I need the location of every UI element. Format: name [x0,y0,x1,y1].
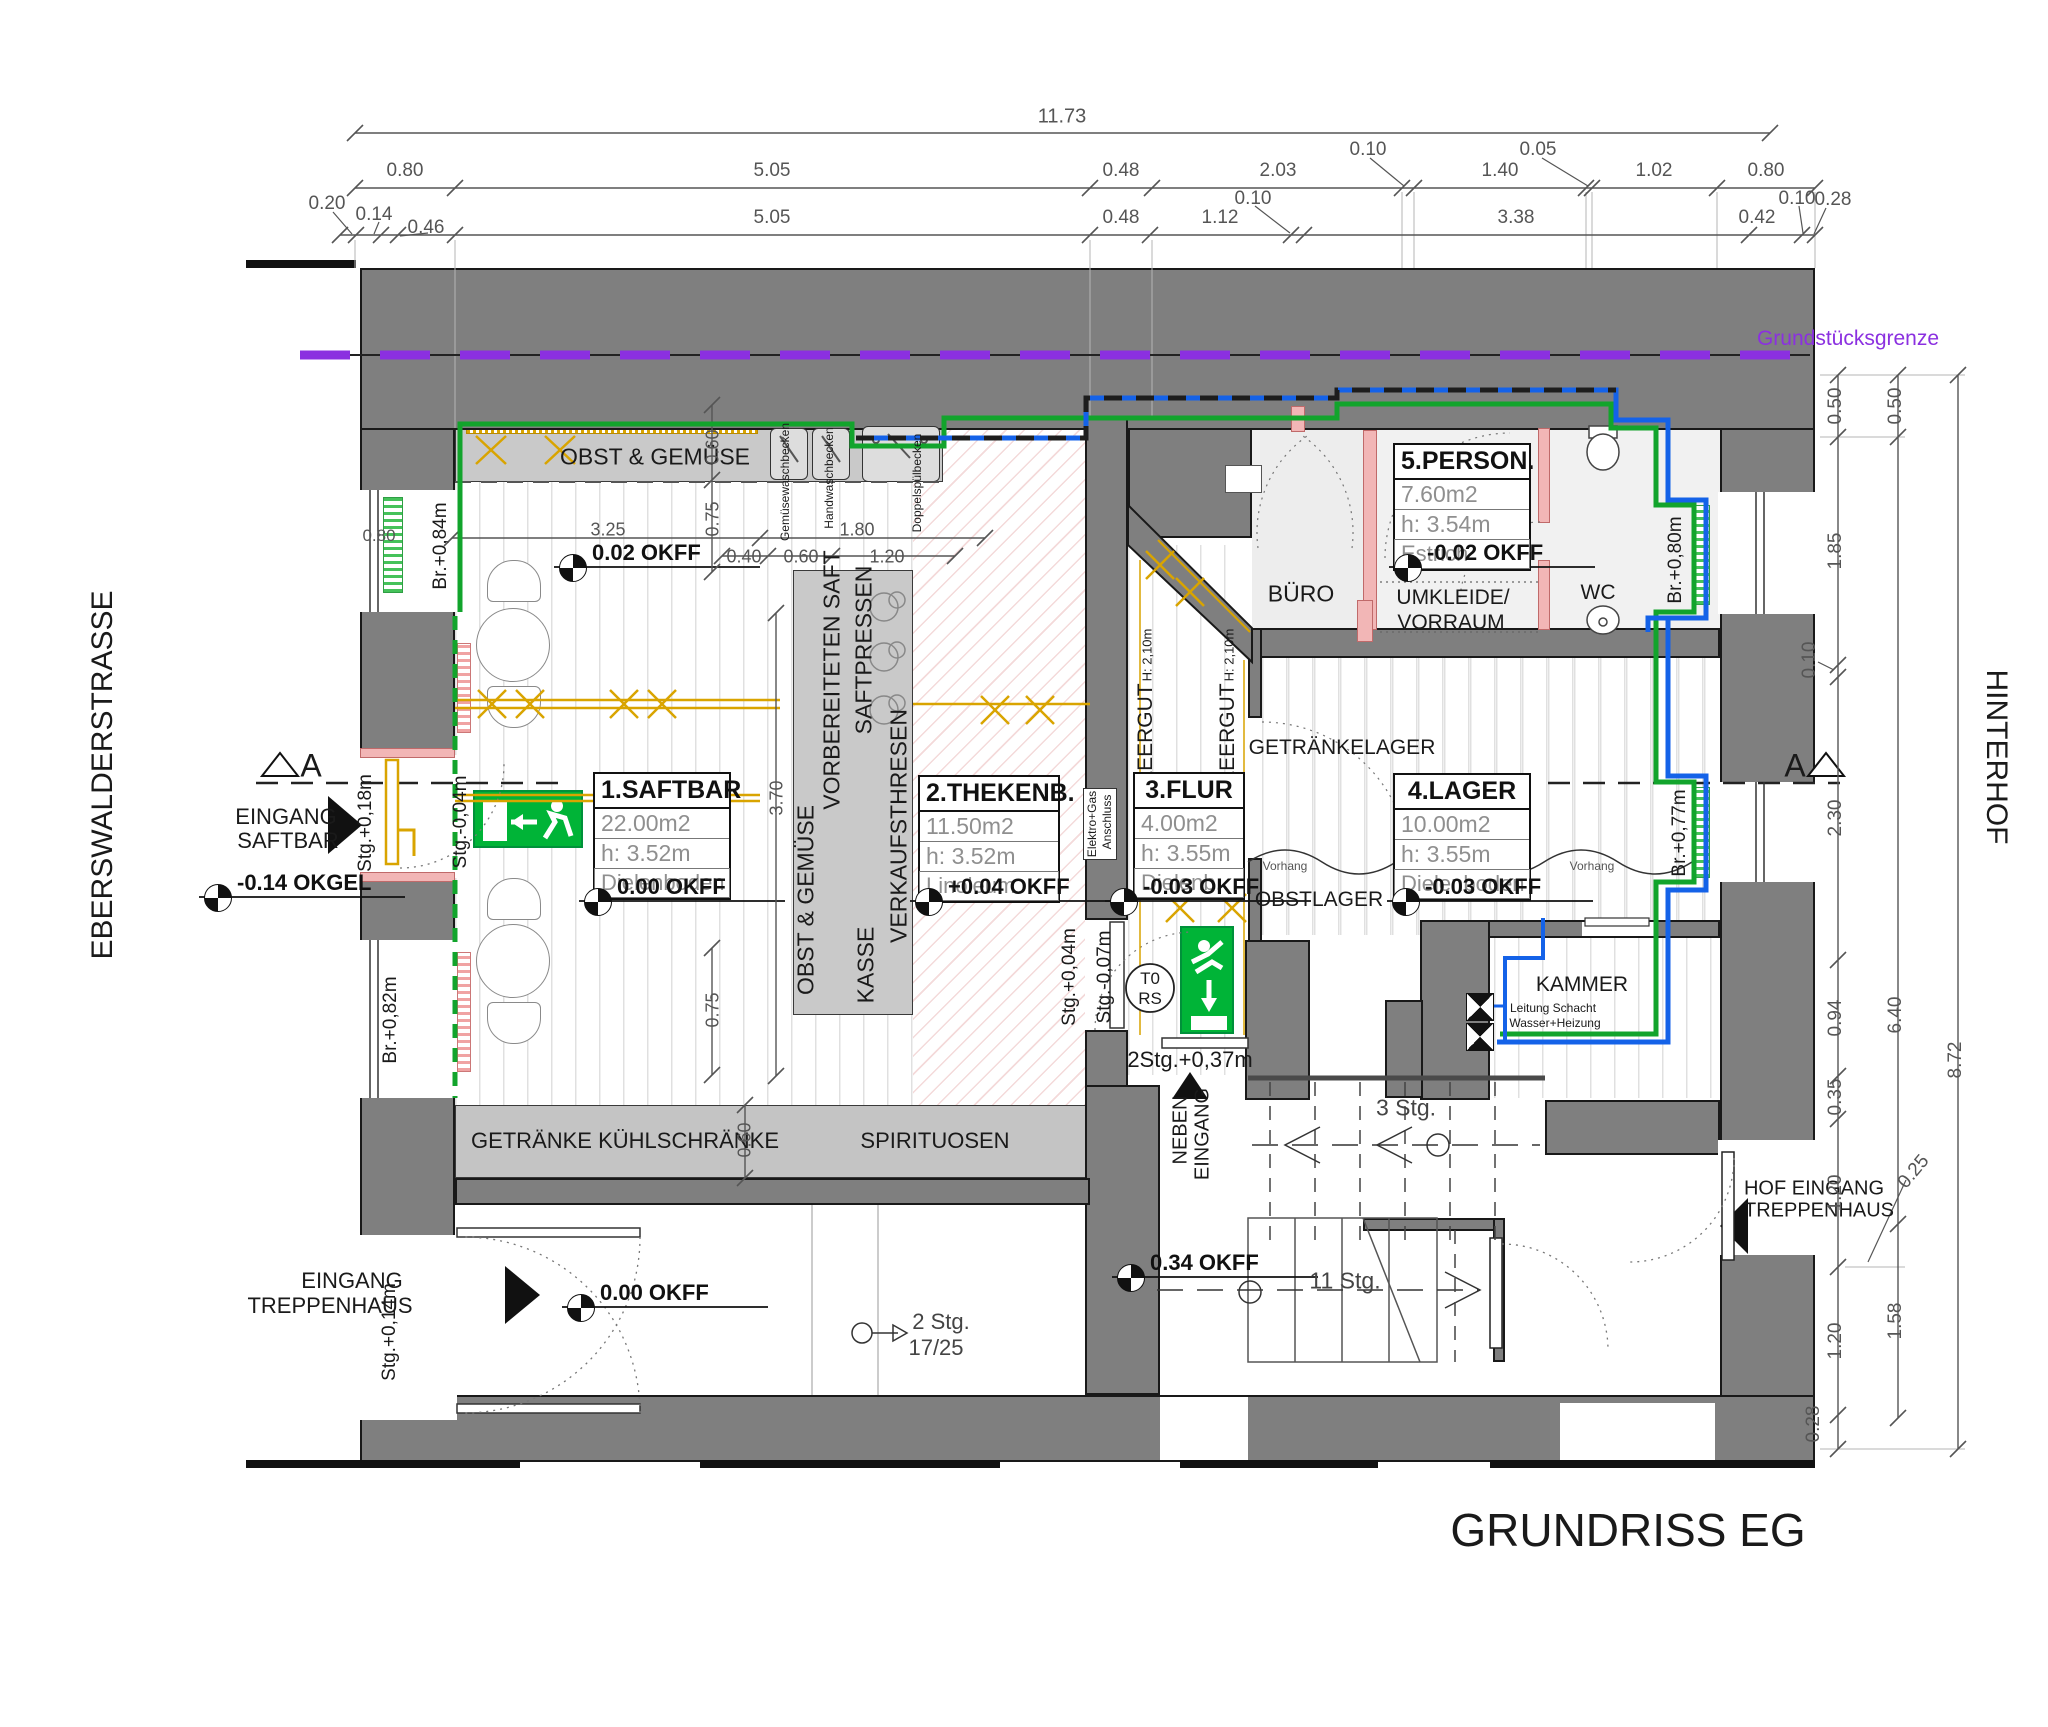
room-area: 22.00m2 [595,809,729,839]
annotation-label: 17/25 [908,1335,963,1361]
street-label: EBERSWALDERSTRASSE [86,591,120,960]
annotation-label: EINGANG [1192,1088,1215,1180]
annotation-label: 0.14 [356,204,393,226]
courtyard-label: HINTERHOF [1979,670,2013,845]
annotation-label: HOF EINGANG [1744,1178,1884,1201]
annotation-label: Stg.+0,04m [1059,928,1081,1026]
room-name: 2.THEKENB. [920,777,1058,812]
annotation-label: Stg.-0,07m [1094,931,1116,1024]
level-mark-text: -0.03 OKFF [1425,874,1541,900]
annotation-label: NEBEN [1170,1096,1193,1165]
annotation-label: Stg.+0,18m [355,774,377,872]
annotation-label: 0.25 [1894,1151,1935,1193]
room-area: 4.00m2 [1135,809,1243,839]
annotation-label: 0.40 [726,547,761,568]
annotation-label: VORBEREITETEN SAFT [819,550,846,809]
room-name: 4.LAGER [1395,775,1529,810]
annotation-label: OBST & GEMÜSE [793,805,820,995]
annotation-label: 0.80 [1748,160,1785,182]
annotation-label: 1.20 [1825,1323,1847,1360]
annotation-label: EINGANG [235,804,336,830]
room-area: 11.50m2 [920,812,1058,842]
annotation-label: 1.20 [1825,1175,1847,1212]
level-mark-symbol [584,888,612,916]
level-mark-text: -0.03 OKFF [1143,874,1259,900]
annotation-label: VORRAUM [1397,611,1504,635]
annotation-label: A [1784,748,1805,785]
annotation-label: GETRÄNKE KÜHLSCHRÄNKE [471,1128,779,1154]
room-name: 3.FLUR [1135,774,1243,809]
annotation-label: 1.80 [839,520,874,541]
annotation-label: 0.80 [387,160,424,182]
annotation-label: SAFTBAR [237,828,338,854]
annotation-label: UMKLEIDE/ [1396,586,1509,610]
annotation-label: Stg.-0,04m [450,776,472,869]
annotation-label: 0.10 [1779,188,1816,210]
annotation-label: Doppelspülbecken [910,434,924,533]
annotation-label: 1.58 [1885,1303,1907,1340]
annotation-label: 1.85 [1825,533,1847,570]
annotation-label: SPIRITUOSEN [860,1128,1009,1154]
annotation-label: Leitung Schacht [1510,1001,1596,1015]
annotation-label: 0.28 [1803,1406,1825,1443]
annotation-label: Vorhang [1263,859,1308,873]
annotation-label: 1.40 [1482,160,1519,182]
annotation-label: LEERGUT [1134,683,1158,782]
room-area: 10.00m2 [1395,810,1529,840]
annotation-label: 3.25 [590,520,625,541]
room-height: h: 3.55m [1395,840,1529,870]
annotation-label: 0.50 [1825,388,1847,425]
plan-title: GRUNDRISS EG [1450,1503,1805,1557]
annotation-label: 0.35 [1825,1079,1847,1116]
annotation-label: 0.48 [1103,207,1140,229]
room-name: 1.SAFTBAR [595,774,729,809]
room-height: h: 3.52m [920,842,1058,872]
annotation-label: RS [1138,989,1162,1009]
annotation-label: 2Stg.+0,37m [1127,1047,1252,1073]
annotation-label: 11 Stg. [1309,1268,1380,1295]
annotation-label: Br.+0,80m [1665,516,1687,603]
annotation-label: KASSE [853,927,880,1004]
annotation-label: Vorhang [1570,859,1615,873]
room-height: h: 3.55m [1135,839,1243,869]
room-height: h: 3.54m [1395,510,1529,540]
annotation-label: 6.40 [1885,997,1907,1034]
level-mark-symbol [1110,888,1138,916]
annotation-label: 0.60 [735,1122,756,1157]
annotation-label: 3.70 [767,780,788,815]
annotation-label: OBSTLAGER [1255,888,1383,912]
annotation-label: Handwaschbecken [822,427,836,528]
annotation-label: 0.05 [1520,139,1557,161]
annotation-label: Br.+0,77m [1669,789,1691,876]
annotation-label: Anschluss [1100,795,1114,850]
annotation-label: Wasser+Heizung [1509,1016,1600,1030]
annotation-label: WC [1581,581,1616,605]
annotation-label: 0.10 [1799,642,1821,679]
annotation-label: LEERGUT [1216,683,1240,782]
level-mark-text: 0.00 OKFF [617,874,726,900]
annotation-label: VERKAUFSTHRESEN [886,709,913,943]
annotation-label: 0.94 [1825,1000,1847,1037]
annotation-label: Br.+0,84m [430,502,452,589]
level-mark-text: 0.02 OKFF [592,540,701,566]
annotation-label: 1.02 [1636,160,1673,182]
annotation-label: 0.60 [703,429,724,464]
annotation-label: 2.30 [1825,800,1847,837]
annotation-label: Gemüsewaschbecken [778,423,792,541]
annotation-label: SAFTPRESSEN [851,566,878,735]
annotation-label: 0.80 [362,526,395,546]
annotation-label: 5.05 [754,160,791,182]
annotation-label: 0.46 [408,217,445,239]
room-area: 7.60m2 [1395,480,1529,510]
annotation-label: TREPPENHAUS [1744,1200,1894,1223]
room-height: h: 3.52m [595,839,729,869]
level-mark-text: +0.04 OKFF [948,874,1070,900]
annotation-label: 5.05 [754,207,791,229]
room-name: 5.PERSON. [1395,445,1529,480]
level-mark-symbol [915,888,943,916]
level-mark-symbol [1394,554,1422,582]
annotation-label: 0.75 [703,501,724,536]
annotation-label: 11.73 [1038,106,1087,129]
level-mark-symbol [1117,1264,1145,1292]
annotation-label: Elektro+Gas [1085,791,1099,857]
annotation-label: 0.10 [1235,188,1272,210]
annotation-label: H: 2,10m [1222,629,1237,682]
annotation-label: Br.+0,82m [380,976,402,1063]
annotation-label: 1.12 [1202,207,1239,229]
annotation-label: H: 2,10m [1140,629,1155,682]
annotation-label: 0.20 [309,193,346,215]
annotation-label: 2 Stg. [912,1309,969,1335]
annotation-label: 0.60 [783,547,818,568]
floorplan-grundriss-eg: GRUNDRISS EGEBERSWALDERSTRASSEHINTERHOFG… [0,0,2048,1727]
level-mark-text: -0.14 OKGEL [237,870,371,896]
annotation-label: GETRÄNKELAGER [1249,736,1436,760]
level-mark-symbol [1392,888,1420,916]
boundary-label: Grundstücksgrenze [1757,327,1939,351]
level-mark-symbol [567,1294,595,1322]
annotation-label: T0 [1140,969,1160,989]
annotation-label: BÜRO [1268,581,1334,608]
annotation-label: Stg.+0,14m [379,1283,401,1381]
annotation-label: A [300,748,321,785]
annotation-label: 3 Stg. [1376,1095,1436,1122]
annotation-label: 0.42 [1739,207,1776,229]
annotation-label: 0.10 [1350,139,1387,161]
annotation-label: 3.38 [1498,207,1535,229]
annotation-label: 1.20 [869,547,904,568]
annotation-label: KAMMER [1536,973,1628,997]
annotation-label: 0.75 [703,992,724,1027]
annotation-label: 0.48 [1103,160,1140,182]
level-mark-text: 0.00 OKFF [600,1280,709,1306]
annotation-label: 8.72 [1945,1042,1967,1079]
level-mark-text: 0.34 OKFF [1150,1250,1259,1276]
level-mark-text: -0.02 OKFF [1427,540,1543,566]
annotation-label: 0.28 [1815,189,1852,211]
annotation-label: 2.03 [1260,160,1297,182]
level-mark-symbol [559,554,587,582]
annotation-label: 0.50 [1885,388,1907,425]
level-mark-symbol [204,884,232,912]
